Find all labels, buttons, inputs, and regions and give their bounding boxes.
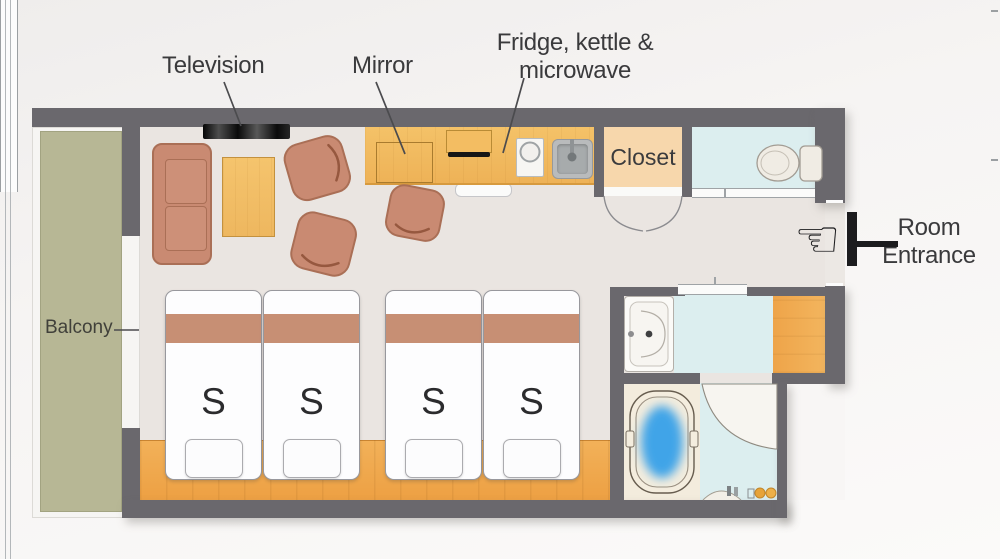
sofa	[152, 143, 212, 265]
fridge-label: Fridge, kettle & microwave	[455, 29, 695, 85]
window-pane-line	[5, 0, 6, 559]
bed-blanket-stripe	[484, 314, 579, 343]
balcony-window	[0, 0, 18, 192]
wall-washroom-top-right	[747, 287, 825, 296]
sofa-cushion	[165, 206, 207, 251]
wall-closet-toilet	[682, 127, 692, 197]
bed-blanket-stripe	[166, 314, 261, 343]
closet-label: Closet	[610, 144, 675, 171]
bed-label: S	[264, 379, 359, 425]
mirror-desk	[376, 142, 433, 183]
bed-foot-cushion	[405, 439, 463, 478]
coffee-table	[222, 157, 275, 237]
pointing-hand-icon: ☜	[794, 214, 841, 266]
outside-area	[787, 384, 845, 500]
wall-bathroom-right	[777, 382, 787, 518]
wall-bathroom-top-left	[610, 373, 700, 384]
wall-top	[32, 108, 845, 127]
bed-single: S	[483, 290, 580, 480]
closet-threshold	[604, 187, 682, 196]
television-label: Television	[162, 52, 264, 80]
washroom-sliding-door	[678, 284, 747, 295]
bed-label: S	[484, 379, 579, 425]
fridge-handle	[448, 152, 490, 157]
kettle-cooktop	[516, 138, 544, 177]
entrance-door-leaf-icon	[856, 241, 898, 247]
armchair-body	[288, 209, 359, 279]
armchair-body	[281, 133, 353, 204]
room-entrance-label-line1: Room	[876, 214, 982, 242]
bed-foot-cushion	[503, 439, 561, 478]
washbasin	[624, 296, 674, 372]
desk-chair-body	[384, 183, 447, 243]
toilet-sliding-door	[692, 188, 815, 198]
fridge	[446, 130, 492, 153]
mirror-label: Mirror	[352, 52, 413, 80]
bed-foot-cushion	[185, 439, 243, 478]
closet-room: Closet	[604, 127, 682, 187]
wall-balcony-lower	[122, 428, 140, 505]
window-tick	[991, 10, 998, 12]
bed-single: S	[165, 290, 262, 480]
window-pane-line	[10, 0, 11, 559]
wall-bottom	[122, 500, 787, 518]
fridge-label-line1: Fridge, kettle &	[455, 29, 695, 57]
floor-plan: Closet S	[0, 0, 1000, 559]
washroom-floor	[674, 295, 773, 373]
sofa-cushion	[165, 159, 207, 204]
wall-counter-closet	[594, 127, 604, 197]
toilet-room	[692, 127, 815, 188]
toilet-door-tick	[724, 188, 726, 198]
desk-chair	[381, 181, 448, 250]
washroom-counter	[773, 295, 825, 373]
wall-balcony-upper	[122, 127, 140, 236]
entrance-door-icon	[847, 212, 857, 266]
wall-washroom-left	[610, 287, 624, 518]
bed-label: S	[386, 379, 481, 425]
kitchen-sink-basin	[557, 144, 588, 174]
television	[203, 124, 290, 139]
entrance-threshold	[826, 200, 843, 203]
bed-blanket-stripe	[386, 314, 481, 343]
bed-blanket-stripe	[264, 314, 359, 343]
bed-foot-cushion	[283, 439, 341, 478]
window-tick	[991, 159, 998, 161]
bed-single: S	[385, 290, 482, 480]
balcony-label: Balcony	[45, 317, 113, 339]
bed-label: S	[166, 379, 261, 425]
bed-single: S	[263, 290, 360, 480]
wall-right-upper	[815, 108, 845, 203]
entrance-threshold	[826, 283, 843, 286]
wall-washroom-top-left	[610, 287, 685, 296]
counter-stool	[455, 183, 512, 197]
shower-floor	[700, 383, 777, 500]
washroom-door-tick	[714, 277, 716, 285]
wall-right-mid	[825, 286, 845, 384]
bathroom-floor	[624, 383, 700, 500]
fridge-label-line2: microwave	[455, 57, 695, 85]
